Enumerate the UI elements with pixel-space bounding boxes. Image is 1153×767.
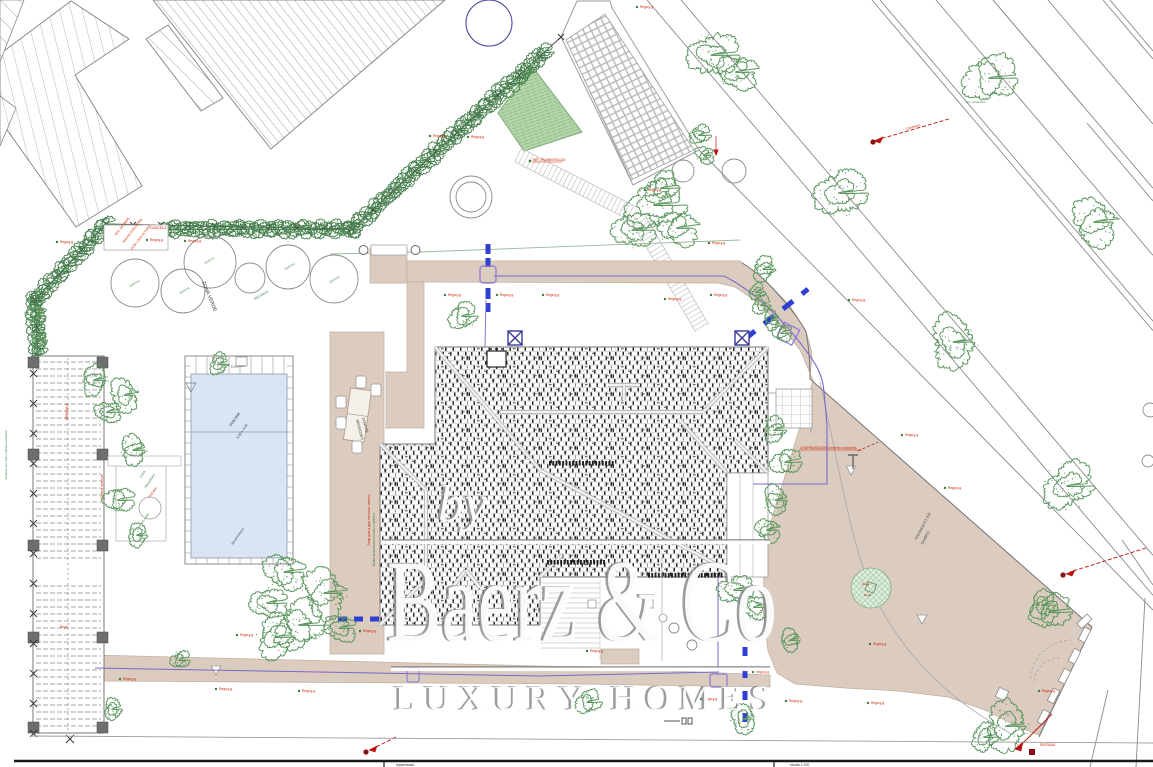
svg-text:Jardim aromaticas em todo o ca: Jardim aromaticas em todo o canteiro <box>372 513 376 567</box>
svg-text:Rega g.g.: Rega g.g. <box>448 293 462 297</box>
svg-text:Rega g.g.: Rega g.g. <box>546 293 560 297</box>
svg-text:Rega g.g.: Rega g.g. <box>712 241 726 245</box>
svg-text:PERGOLA: PERGOLA <box>65 403 69 420</box>
svg-text:Rega g.g.: Rega g.g. <box>789 699 803 703</box>
svg-text:Rega g.g.: Rega g.g. <box>150 238 164 242</box>
svg-text:Rega g.g.: Rega g.g. <box>471 135 485 139</box>
svg-text:Rega g.g.: Rega g.g. <box>188 239 202 243</box>
svg-text:Wisteria sinensis: Wisteria sinensis <box>100 474 104 500</box>
svg-text:Rega g.g.: Rega g.g. <box>905 433 919 437</box>
svg-text:L U X U R Y H O M E S: L U X U R Y H O M E S <box>395 678 770 718</box>
svg-text:Rega g.g.: Rega g.g. <box>640 5 654 9</box>
svg-text:Rega g.g.: Rega g.g. <box>219 687 233 691</box>
svg-text:implantacao: implantacao <box>396 763 414 767</box>
svg-text:ENTRADA: ENTRADA <box>1040 743 1056 747</box>
svg-text:Rega g.g.: Rega g.g. <box>871 701 885 705</box>
svg-text:Rega g.g.: Rega g.g. <box>433 134 447 138</box>
svg-text:Baerz & Co: Baerz & Co <box>387 536 777 667</box>
svg-text:REF. PAVIMENTACAO: REF. PAVIMENTACAO <box>533 158 566 162</box>
svg-text:Rega g.g.: Rega g.g. <box>302 689 316 693</box>
svg-text:Rega g.g.: Rega g.g. <box>948 486 962 490</box>
svg-text:Rega g.g.: Rega g.g. <box>363 629 377 633</box>
svg-text:Rega g.g.: Rega g.g. <box>60 240 74 244</box>
svg-text:Rega g.g.: Rega g.g. <box>648 188 662 192</box>
svg-text:Rega g.g.: Rega g.g. <box>714 293 728 297</box>
svg-text:Rega g.g.: Rega g.g. <box>240 633 254 637</box>
svg-text:Rega g.g.: Rega g.g. <box>1042 689 1056 693</box>
svg-text:escala 1:200: escala 1:200 <box>790 763 809 767</box>
svg-text:Rega g.g.: Rega g.g. <box>852 298 866 302</box>
svg-text:Rega: Rega <box>862 582 870 586</box>
svg-text:Rega g.g.: Rega g.g. <box>123 677 137 681</box>
svg-text:Rega: Rega <box>864 593 872 597</box>
svg-text:CHURRASQUEIRA exterior complet: CHURRASQUEIRA exterior completa <box>800 446 857 450</box>
svg-text:Rega: Rega <box>60 625 68 629</box>
svg-text:by: by <box>438 476 488 533</box>
svg-text:Rega g.g.: Rega g.g. <box>873 642 887 646</box>
svg-text:Vedacao em rede ovelheira exis: Vedacao em rede ovelheira existente <box>4 430 8 480</box>
svg-text:Rega g.g.: Rega g.g. <box>500 293 514 297</box>
svg-text:Rega g.g.: Rega g.g. <box>668 297 682 301</box>
svg-text:Rega gota a gota em todos cant: Rega gota a gota em todos canteiro <box>367 494 371 545</box>
svg-text:CANCELA: CANCELA <box>150 226 167 230</box>
svg-text:Arv. existentes: Arv. existentes <box>966 100 986 104</box>
